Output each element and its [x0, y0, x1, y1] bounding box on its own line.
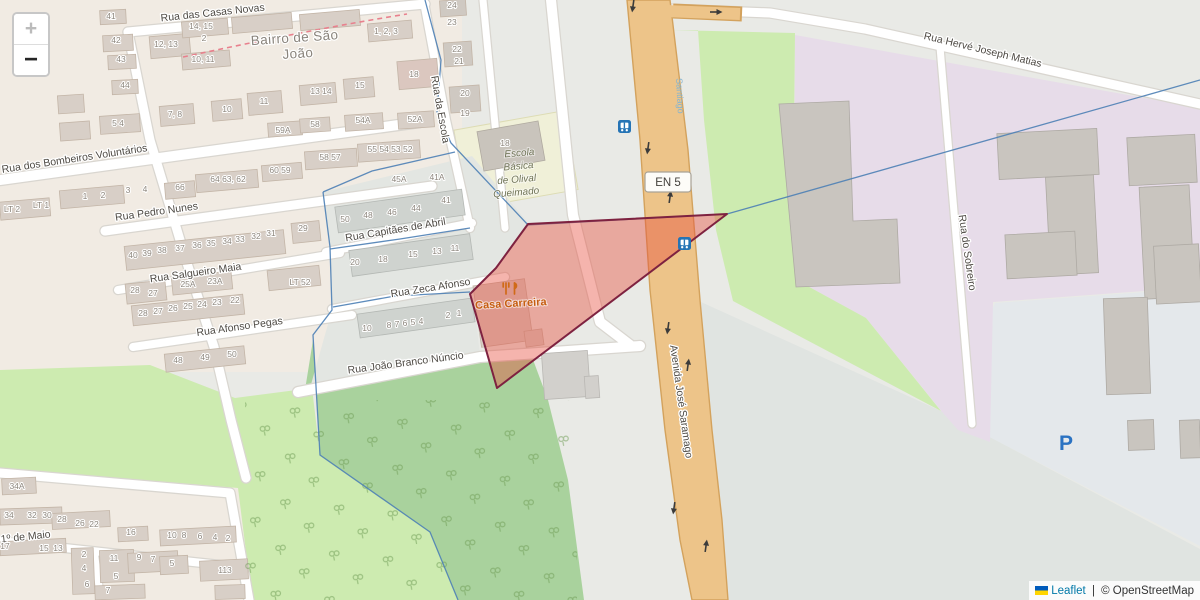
openstreetmap-link[interactable]: © OpenStreetMap — [1101, 585, 1194, 597]
house-number-label: 34A — [9, 481, 24, 491]
house-number-label: 4 — [143, 184, 148, 194]
house-number-label: LT 52 — [290, 277, 311, 287]
house-number-label: 30 — [42, 510, 52, 520]
house-number-label: 42 — [111, 35, 121, 45]
house-number-label: 33 — [235, 234, 245, 244]
attribution-bar: Leaflet | © OpenStreetMap — [1029, 581, 1200, 600]
house-number-label: 10, 11 — [191, 54, 214, 64]
house-number-label: 15 — [408, 249, 418, 259]
house-number-label: 25A — [180, 279, 195, 289]
house-number-label: 41 — [441, 195, 451, 205]
house-number-label: 24 — [447, 0, 457, 10]
attribution-separator: | — [1089, 585, 1098, 597]
house-number-label: 22 — [89, 519, 99, 529]
house-number-label: 23 — [447, 17, 457, 27]
house-number-label: 27 — [153, 306, 163, 316]
house-number-label: 18 — [409, 69, 419, 79]
house-number-label: 58 — [310, 119, 320, 129]
house-number-label: 16 — [126, 527, 136, 537]
house-number-label: 10 — [362, 323, 372, 333]
house-number-label: 19 — [460, 108, 470, 118]
house-number-label: 5 4 — [112, 118, 124, 128]
house-number-label: 44 — [411, 203, 421, 213]
house-number-label: 10 — [167, 530, 177, 540]
house-number-label: 11 — [451, 243, 460, 253]
house-number-label: 5 — [170, 558, 175, 568]
house-number-label: 113 — [218, 565, 232, 575]
leaflet-map[interactable]: EN 5 Rua das Casas Novas Rua dos Bombeir… — [0, 0, 1200, 600]
tree-symbols — [245, 400, 577, 600]
house-number-label: 5 — [114, 571, 119, 581]
house-number-label: 21 — [454, 56, 464, 66]
house-number-label: 23A — [207, 276, 222, 286]
house-number-label: 13 — [432, 246, 442, 256]
house-number-label: 1, 2, 3 — [374, 26, 398, 36]
house-number-label: 15 — [39, 543, 49, 553]
house-number-label: 26 — [75, 518, 85, 528]
zoom-control: + − — [12, 12, 50, 77]
map-canvas[interactable]: EN 5 Rua das Casas Novas Rua dos Bombeir… — [0, 0, 1200, 600]
zoom-in-button[interactable]: + — [14, 14, 48, 45]
house-number-label: 4 — [419, 316, 424, 326]
house-number-label: 6 — [85, 579, 90, 589]
house-number-label: 32 — [251, 231, 261, 241]
house-number-label: 34 — [222, 236, 232, 246]
house-number-label: 6 — [198, 531, 203, 541]
house-number-label: LT 2 — [4, 204, 20, 214]
house-number-label: 22 — [230, 295, 240, 305]
bus-stop-icon — [618, 120, 631, 133]
house-number-label: 1 — [83, 191, 88, 201]
house-number-label: 55 54 53 52 — [368, 144, 413, 154]
house-number-label: 28 — [130, 285, 140, 295]
house-number-label: 8 — [387, 320, 392, 330]
house-number-label: 58 57 — [319, 152, 341, 162]
house-number-label: 22 — [452, 44, 462, 54]
house-number-label: 66 — [175, 182, 185, 192]
house-number-label: 13 14 — [310, 86, 332, 96]
house-number-label: 5 — [411, 317, 416, 327]
house-number-label: 24 — [197, 299, 207, 309]
house-number-label: 50 — [227, 349, 237, 359]
route-badge-label: EN 5 — [655, 177, 681, 189]
house-number-label: 48 — [363, 210, 373, 220]
house-number-label: 18 — [500, 138, 510, 148]
house-number-label: 2 — [446, 310, 451, 320]
house-number-label: 6 — [403, 318, 408, 328]
route-badge: EN 5 — [645, 172, 691, 192]
house-number-label: 38 — [157, 245, 167, 255]
house-number-label: 2 — [82, 549, 87, 559]
house-number-label: 13 — [53, 543, 63, 553]
house-number-label: 34 — [4, 510, 14, 520]
house-number-label: 1 — [457, 308, 462, 318]
house-number-label: 64 63, 62 — [210, 174, 246, 184]
house-number-label: 36 — [192, 240, 202, 250]
house-number-label: 14, 15 — [189, 21, 213, 31]
house-number-label: 7, 8 — [168, 109, 182, 119]
house-number-label: 49 — [200, 352, 210, 362]
house-number-label: 11 — [260, 96, 269, 106]
house-number-label: 35 — [206, 238, 216, 248]
house-number-label: 43 — [116, 54, 126, 64]
house-number-label: 25 — [183, 301, 193, 311]
house-number-label: 29 — [298, 223, 308, 233]
house-number-label: 9 — [137, 552, 142, 562]
route-name-label: Santiago — [674, 78, 686, 114]
house-number-label: 7 — [106, 585, 111, 595]
house-number-label: 12, 13 — [154, 39, 178, 49]
house-number-label: 4 — [82, 563, 87, 573]
bus-stop-icon — [678, 237, 691, 250]
house-number-label: 31 — [266, 228, 276, 238]
zoom-out-button[interactable]: − — [14, 45, 48, 75]
house-number-label: LT 1 — [33, 200, 49, 210]
house-number-label: 20 — [350, 257, 360, 267]
house-number-label: 20 — [460, 88, 470, 98]
house-number-label: 41A — [429, 172, 444, 182]
house-number-label: 44 — [120, 80, 130, 90]
house-number-label: 28 — [57, 514, 67, 524]
house-number-label: 3 — [126, 185, 131, 195]
house-number-label: 37 — [175, 243, 185, 253]
house-number-label: 11 — [110, 553, 119, 563]
house-number-label: 54A — [355, 115, 370, 125]
house-number-label: 50 — [340, 214, 350, 224]
house-number-label: 48 — [173, 355, 183, 365]
house-number-label: 32 — [27, 510, 37, 520]
house-number-label: 41 — [106, 11, 116, 21]
house-number-label: 28 — [138, 308, 148, 318]
house-number-label: 7 — [395, 319, 400, 329]
house-number-label: 52A — [407, 114, 422, 124]
ukraine-flag-icon — [1035, 586, 1048, 595]
house-number-label: 27 — [148, 288, 158, 298]
house-number-label: 40 — [128, 250, 138, 260]
house-number-label: 4 — [213, 532, 218, 542]
house-number-label: 23 — [212, 297, 222, 307]
house-number-label: 2 — [226, 533, 231, 543]
house-number-label: 2 — [101, 190, 106, 200]
house-number-label: 2 — [202, 33, 207, 43]
house-number-label: 26 — [168, 303, 178, 313]
house-number-label: 60 59 — [269, 165, 291, 175]
house-number-label: 15 — [355, 80, 365, 90]
house-number-label: 7 — [151, 554, 156, 564]
house-number-label: 18 — [378, 254, 388, 264]
house-number-label: 59A — [275, 125, 290, 135]
house-number-label: 8 — [182, 530, 187, 540]
house-number-label: 17 — [0, 541, 10, 551]
house-number-label: 39 — [142, 248, 152, 258]
leaflet-link[interactable]: Leaflet — [1051, 585, 1086, 597]
house-number-label: 45A — [391, 174, 406, 184]
house-number-label: 10 — [222, 104, 232, 114]
parking-icon: P — [1059, 432, 1073, 455]
house-number-label: 46 — [387, 207, 397, 217]
